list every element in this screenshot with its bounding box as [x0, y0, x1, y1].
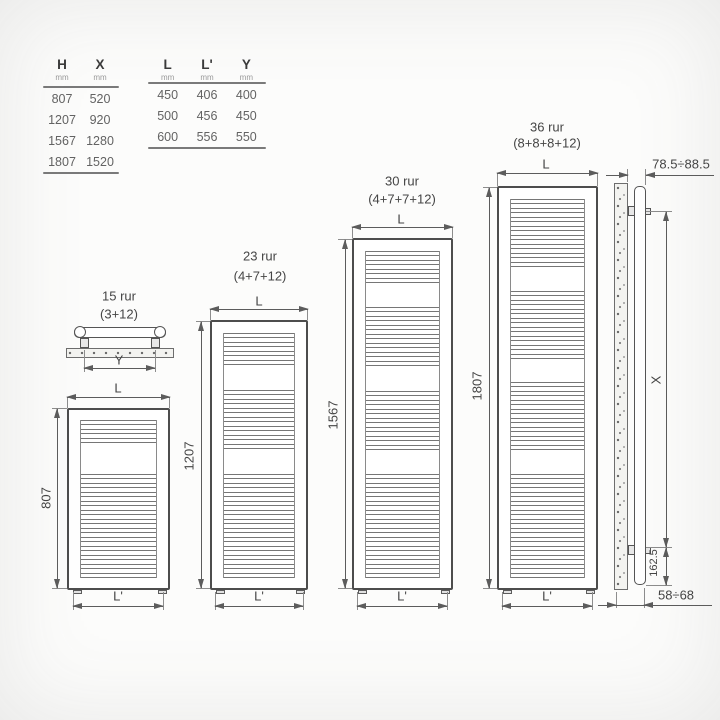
radiator-foot — [586, 590, 595, 594]
dim-label-l: L — [255, 294, 262, 309]
column-header: X mm — [81, 58, 119, 86]
tube — [224, 528, 294, 533]
tube — [511, 199, 584, 204]
table-rule — [148, 147, 266, 149]
tube-grid — [365, 251, 440, 578]
tube — [366, 564, 439, 569]
dim-label-l: L — [542, 157, 549, 172]
column-unit: mm — [227, 74, 266, 82]
tube — [511, 483, 584, 488]
dim-line-x — [666, 212, 667, 547]
tube — [511, 418, 584, 423]
tube-grid — [510, 199, 585, 578]
tube — [224, 333, 294, 338]
tube — [366, 537, 439, 542]
column-unit: mm — [187, 74, 226, 82]
tube — [511, 382, 584, 387]
dim-line-l-prime — [502, 606, 592, 607]
column-unit: mm — [81, 74, 119, 82]
tube — [81, 501, 156, 506]
dim-label-l: L — [397, 212, 404, 227]
tube — [224, 510, 294, 515]
tube — [366, 269, 439, 274]
dim-line-depth — [598, 605, 616, 606]
tube — [511, 436, 584, 441]
table-row: 600 556 550 — [148, 126, 266, 147]
tube — [224, 546, 294, 551]
tube — [511, 445, 584, 450]
tube — [366, 391, 439, 396]
tube — [81, 537, 156, 542]
dimension-table-lly: L mm L' mm Y mm 450 406 400 500 456 450 … — [148, 58, 266, 149]
table-hx-header: H mm X mm — [43, 58, 119, 86]
tube — [366, 528, 439, 533]
tube — [511, 555, 584, 560]
column-header: H mm — [43, 58, 81, 86]
tube-group — [81, 474, 156, 578]
table-rule — [43, 172, 119, 174]
column-header: Y mm — [227, 58, 266, 82]
tube — [366, 427, 439, 432]
tube — [366, 400, 439, 405]
wall-bracket-right — [151, 338, 160, 348]
tube — [511, 327, 584, 332]
dim-label-l-prime: L' — [397, 589, 407, 604]
dim-label-wall-offset: 78.5÷88.5 — [652, 157, 710, 172]
tube — [81, 555, 156, 560]
tube-group — [366, 307, 439, 366]
tube — [366, 519, 439, 524]
tube — [511, 546, 584, 551]
tube — [511, 244, 584, 249]
table-cell: 600 — [148, 130, 187, 144]
tube-group — [81, 420, 156, 443]
table-cell: 456 — [187, 109, 226, 123]
tube — [224, 399, 294, 404]
dim-label-height: 1207 — [182, 442, 197, 471]
column-header: L mm — [148, 58, 187, 82]
tube — [224, 426, 294, 431]
dim-line-h — [57, 409, 58, 588]
radiator-frame — [352, 238, 453, 590]
tube — [511, 427, 584, 432]
tube — [511, 400, 584, 405]
radiator-1-title: 15 rur — [102, 289, 136, 304]
tube — [366, 501, 439, 506]
radiator-4-title: 36 rur — [530, 120, 564, 135]
dim-label-height: 807 — [39, 487, 54, 509]
tube — [511, 510, 584, 515]
radiator-frame — [67, 408, 170, 590]
tube-grid — [223, 333, 295, 578]
radiator-3-formula: (4+7+7+12) — [368, 192, 436, 207]
tube — [511, 391, 584, 396]
tube — [224, 474, 294, 479]
table-cell: 450 — [148, 88, 187, 102]
radiator-4-formula: (8+8+8+12) — [513, 136, 581, 151]
tube — [366, 260, 439, 265]
dim-label-depth: 58÷68 — [658, 588, 694, 603]
table-cell: 520 — [81, 92, 119, 106]
tube-group — [224, 390, 294, 449]
tube — [224, 444, 294, 449]
table-cell: 807 — [43, 92, 81, 106]
tube — [366, 307, 439, 312]
tube — [366, 474, 439, 479]
tube — [224, 390, 294, 395]
tube — [81, 438, 156, 443]
table-cell: 450 — [227, 109, 266, 123]
radiator-profile — [634, 186, 646, 585]
dim-label-x: X — [649, 376, 664, 385]
tube — [366, 510, 439, 515]
tube — [511, 253, 584, 258]
dim-line-l — [352, 227, 453, 228]
table-cell: 1567 — [43, 134, 81, 148]
tube — [366, 361, 439, 366]
tube — [224, 342, 294, 347]
tube — [81, 492, 156, 497]
dim-line-h — [201, 322, 202, 588]
tube — [81, 420, 156, 425]
dim-line-depth — [616, 605, 644, 606]
table-lly-header: L mm L' mm Y mm — [148, 58, 266, 82]
table-cell: 1280 — [81, 134, 119, 148]
table-row: 500 456 450 — [148, 105, 266, 126]
table-cell: 556 — [187, 130, 226, 144]
tube — [224, 537, 294, 542]
tube — [511, 537, 584, 542]
tube-group — [511, 382, 584, 450]
column-label: X — [81, 58, 119, 72]
tube — [224, 483, 294, 488]
tube-group — [366, 251, 439, 283]
tube — [224, 519, 294, 524]
tube — [511, 318, 584, 323]
dim-label-height: 1567 — [326, 401, 341, 430]
tube — [511, 354, 584, 359]
tube — [224, 564, 294, 569]
tube — [366, 436, 439, 441]
tube-end-right — [154, 326, 166, 338]
tube — [511, 519, 584, 524]
tube — [224, 435, 294, 440]
tube — [224, 351, 294, 356]
dim-line-h — [345, 240, 346, 588]
table-cell: 1207 — [43, 113, 81, 127]
dim-label-l-prime: L' — [254, 589, 264, 604]
radiator-foot — [503, 590, 512, 594]
dim-line-y — [84, 368, 155, 369]
tube-group — [366, 391, 439, 450]
tube — [366, 251, 439, 256]
tube-group — [366, 474, 439, 578]
dim-line-wall-offset — [606, 175, 628, 176]
tube-group — [511, 291, 584, 359]
radiator-2-formula: (4+7+12) — [234, 269, 287, 284]
tube — [224, 501, 294, 506]
table-row: 1207 920 — [43, 109, 119, 130]
dim-label-l-prime: L' — [542, 589, 552, 604]
tube-grid — [80, 420, 157, 578]
table-row: 1807 1520 — [43, 151, 119, 172]
tube — [366, 445, 439, 450]
tube — [511, 474, 584, 479]
tube — [224, 417, 294, 422]
dim-label-l: L — [114, 381, 121, 396]
table-cell: 400 — [227, 88, 266, 102]
tube — [511, 291, 584, 296]
tube — [511, 528, 584, 533]
tube-end-left — [74, 326, 86, 338]
tube — [224, 492, 294, 497]
wall-bracket-bottom — [628, 545, 635, 555]
radiator-3-title: 30 rur — [385, 174, 419, 189]
tube — [511, 217, 584, 222]
table-cell: 550 — [227, 130, 266, 144]
radiator-frame — [210, 320, 308, 590]
dim-line-depth — [644, 605, 712, 606]
tube-group — [224, 474, 294, 578]
dim-line-h — [489, 188, 490, 588]
dim-line-l — [210, 309, 308, 310]
tube — [81, 573, 156, 578]
table-cell: 406 — [187, 88, 226, 102]
column-label: H — [43, 58, 81, 72]
tube-group — [511, 199, 584, 267]
tube — [81, 546, 156, 551]
dim-label-height: 1807 — [470, 372, 485, 401]
tube — [224, 573, 294, 578]
tube — [366, 409, 439, 414]
radiator-foot — [216, 590, 225, 594]
radiator-1-formula: (3+12) — [100, 307, 138, 322]
table-cell: 500 — [148, 109, 187, 123]
wall-section — [614, 183, 628, 590]
tube — [81, 483, 156, 488]
tube — [511, 501, 584, 506]
dim-label-bottom-spacing: 162.5 — [648, 549, 660, 577]
tube — [366, 492, 439, 497]
tube — [366, 573, 439, 578]
tube-group — [224, 333, 294, 365]
tube — [511, 262, 584, 267]
tube — [366, 316, 439, 321]
wall-bracket-top — [628, 206, 635, 216]
radiator-foot — [73, 590, 82, 594]
column-label: Y — [227, 58, 266, 72]
dim-line-l-prime — [73, 606, 163, 607]
radiator-foot — [358, 590, 367, 594]
tube-group — [511, 474, 584, 578]
tube — [366, 343, 439, 348]
tube — [81, 519, 156, 524]
dim-line-l — [67, 397, 170, 398]
tube — [511, 208, 584, 213]
radiator-foot — [441, 590, 450, 594]
tube — [366, 278, 439, 283]
technical-drawing: H mm X mm 807 520 1207 920 1567 1280 180… — [0, 0, 720, 720]
collector-tube-top-view — [74, 327, 166, 338]
table-cell: 1807 — [43, 155, 81, 169]
tube — [81, 429, 156, 434]
tube — [224, 360, 294, 365]
dim-line-wall-offset — [646, 175, 714, 176]
wall-bracket-left — [80, 338, 89, 348]
tube — [81, 528, 156, 533]
radiator-2-title: 23 rur — [243, 249, 277, 264]
tube — [366, 483, 439, 488]
tube — [366, 325, 439, 330]
table-row: 450 406 400 — [148, 84, 266, 105]
tube — [81, 564, 156, 569]
tube — [224, 408, 294, 413]
tube — [511, 300, 584, 305]
dim-line-bottom-spacing — [666, 548, 667, 585]
column-header: L' mm — [187, 58, 226, 82]
tube — [511, 336, 584, 341]
tube — [81, 510, 156, 515]
table-row: 807 520 — [43, 88, 119, 109]
tube — [511, 235, 584, 240]
tube — [511, 492, 584, 497]
dim-line-l-prime — [357, 606, 447, 607]
tube — [366, 418, 439, 423]
tube — [511, 573, 584, 578]
table-row: 1567 1280 — [43, 130, 119, 151]
tube — [511, 309, 584, 314]
column-unit: mm — [43, 74, 81, 82]
column-unit: mm — [148, 74, 187, 82]
dim-line-l — [497, 173, 598, 174]
tube — [366, 546, 439, 551]
column-label: L — [148, 58, 187, 72]
table-cell: 1520 — [81, 155, 119, 169]
table-cell: 920 — [81, 113, 119, 127]
tube — [511, 226, 584, 231]
tube — [511, 564, 584, 569]
tube — [81, 474, 156, 479]
dimension-table-hx: H mm X mm 807 520 1207 920 1567 1280 180… — [43, 58, 119, 174]
tube — [224, 555, 294, 560]
tube — [511, 345, 584, 350]
dim-line-l-prime — [215, 606, 303, 607]
tube — [366, 352, 439, 357]
plan-view-width-label: Y — [115, 353, 124, 368]
tube — [366, 555, 439, 560]
dim-label-l-prime: L' — [113, 589, 123, 604]
column-label: L' — [187, 58, 226, 72]
tube — [366, 334, 439, 339]
radiator-frame — [497, 186, 598, 590]
tube — [511, 409, 584, 414]
